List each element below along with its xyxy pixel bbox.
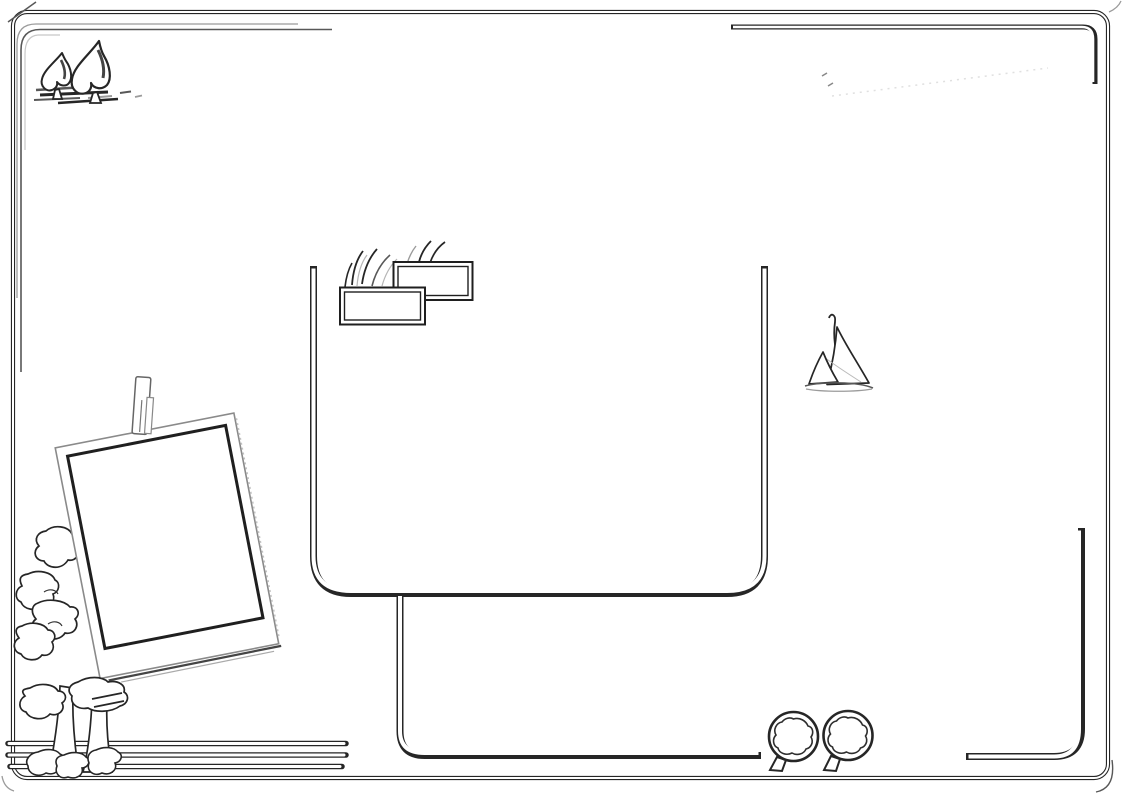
- tree-blobs-upper: [14, 527, 79, 660]
- inner-border-ribbon-dark: [731, 27, 1095, 84]
- sailboat-sketch: [805, 315, 873, 392]
- l-ribbon-dark: [966, 528, 1082, 757]
- corner-overshoot-top-right: [1109, 1, 1121, 12]
- grass-stroke: [430, 242, 445, 263]
- tick-mark: [822, 73, 827, 76]
- tick-mark: [828, 83, 833, 86]
- ribbon-corner-bottom-right: [966, 528, 1082, 757]
- spade-stem-small: [53, 89, 62, 99]
- spade-plants: [34, 41, 142, 103]
- ground-dash: [135, 96, 142, 98]
- sailboat-hull-bottom: [806, 389, 872, 391]
- drop-ribbon-dark: [400, 594, 761, 756]
- grass-stroke: [345, 263, 352, 287]
- line-art-canvas: [0, 0, 1123, 794]
- ground-dash: [120, 92, 131, 94]
- drop-ribbon-white: [400, 596, 759, 753]
- trees-foreground: [20, 678, 128, 778]
- page-border-frame: [2, 1, 1121, 792]
- ground-scribble: [58, 99, 118, 103]
- tag-lower: [340, 288, 425, 325]
- spade-leaf-small: [42, 53, 72, 90]
- u-path-ribbon: [314, 266, 765, 756]
- l-ribbon-white: [969, 531, 1080, 757]
- grass-stroke: [419, 241, 431, 262]
- grass-tuft: [88, 748, 121, 775]
- corner-overshoot-bottom-left: [2, 776, 14, 791]
- faint-dotted-guide: [832, 68, 1048, 96]
- scalloped-buttons: [769, 711, 873, 771]
- sketch-page: [0, 0, 1123, 794]
- photo-frame: [55, 413, 282, 686]
- tree-blob: [20, 684, 66, 718]
- inner-border-ribbon-white: [733, 27, 1093, 82]
- journaling-tags: [340, 241, 473, 325]
- grass-stroke: [372, 255, 390, 286]
- grass-tuft: [56, 753, 89, 778]
- clothespin: [132, 377, 155, 435]
